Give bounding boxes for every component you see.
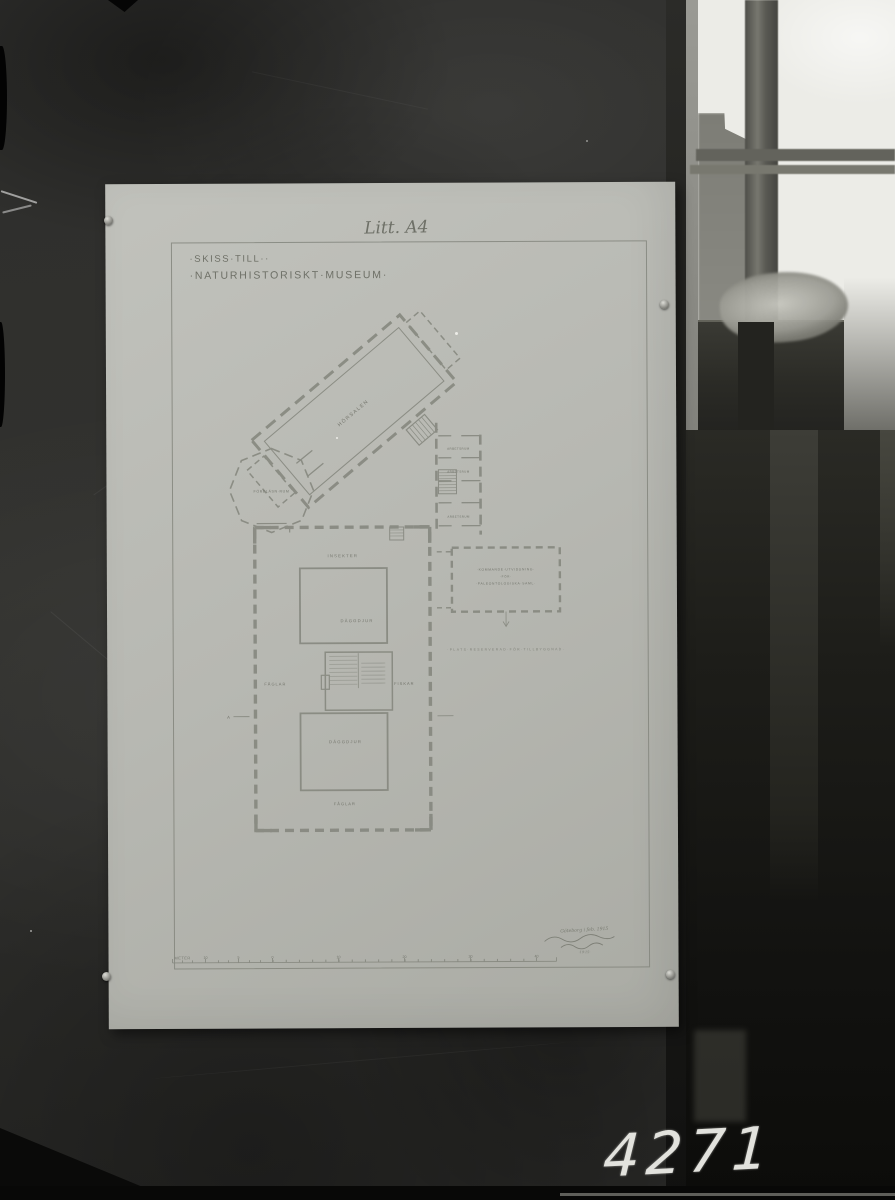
sheet-subtitle-2: ·NATURHISTORISKT·MUSEUM· [190,269,389,282]
scale-tick-label: 20 [403,955,407,959]
scale-tick-label: 30 [469,955,473,959]
wood-planks [686,430,895,1200]
wood-post-short [738,322,774,430]
scale-tick-label: 10 [337,955,341,959]
floor-patch [694,1030,746,1122]
scale-tick-label: 0 [272,956,274,960]
plan-reserved-note: ·PLATS·RESERVERAD·FÖR·TILLBYGGNAD· [447,647,565,652]
window-pane-highlight [778,0,895,150]
scale-tick-label: 40 [535,954,539,958]
wall-edge [686,0,698,430]
plate-bottom-sliver [560,1193,895,1196]
plan-label-east-gallery: FISKAR [394,681,414,686]
plan-label-octagon: FÖRELÄSN·RUM [254,489,290,493]
plan-label-upper-court: DÄGGDJUR [341,618,374,623]
plan-label-west-gallery: FÅGLAR [264,681,286,686]
wood-edge-strip [880,430,895,650]
push-pin [666,970,675,979]
push-pin [102,972,111,981]
plan-label-entrance: INSEKTER [327,553,358,558]
sheet-subtitle-1: ·SKISS·TILL·· [189,254,270,265]
plan-annex-note-3: ·PALEONTOLOGISKA·SAML· [476,581,536,585]
plan-label-room: ARBETSRUM [447,447,470,451]
dust-speck [586,140,588,142]
dust-speck [336,437,338,439]
drawing-sheet: Litt. A4 ·SKISS·TILL·· ·NATURHISTORISKT·… [105,182,679,1029]
dust-speck [30,930,32,932]
floor-plan-drawing: Litt. A4 ·SKISS·TILL·· ·NATURHISTORISKT·… [105,182,679,1029]
drawing-border [171,241,649,969]
scale-unit-label: METER [175,955,191,960]
window-transom-bar [696,149,895,161]
window [686,0,895,430]
signature-date-line: Göteborg i feb. 1915 [560,926,609,935]
plan-section-mark: A [227,715,230,720]
dust-speck [455,332,458,335]
signature-small-line: ·19·15· [579,950,591,954]
window-pane-shade [844,176,895,430]
plan-label-room: ARBETSRUM [447,515,470,519]
wood-plank-light [770,430,818,900]
plan-annex-note-1: ·KOMMANDE·UTVIDGNING· [477,567,535,571]
plan-annex-note-2: ·FÖR· [500,574,512,578]
sheet-litt-label: Litt. A4 [363,217,429,238]
plan-label-south-gallery: FÅGLAR [334,801,356,806]
scale-tick-label: 10 [204,956,208,960]
plan-label-room: ARBETSRUM [447,470,470,474]
catalog-number: 4271 [601,1113,776,1190]
plan-label-hall: HÖRSALEN [336,398,370,428]
push-pin [660,300,669,309]
window-transom-bar [690,165,895,174]
push-pin [104,216,113,225]
archival-photograph: Litt. A4 ·SKISS·TILL·· ·NATURHISTORISKT·… [0,0,895,1200]
plan-label-lower-court: DÄGGDJUR [329,739,362,744]
scale-tick-label: 5 [238,956,240,960]
